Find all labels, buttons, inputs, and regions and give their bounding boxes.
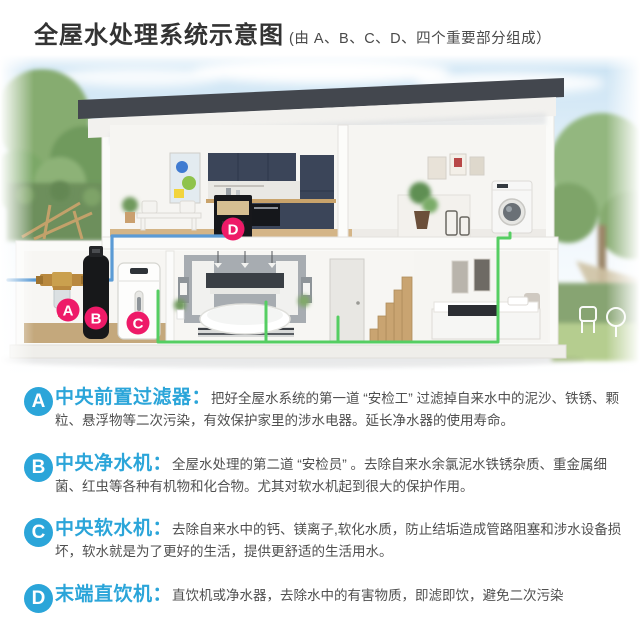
floor-slab xyxy=(102,237,558,249)
marker-c-letter: C xyxy=(133,316,144,333)
section-b-title: 中央净水机： xyxy=(55,453,172,474)
door-knob xyxy=(356,301,360,305)
section-c-text: 中央软水机：去除自来水中的钙、镁离子,软化水质，防止结垢造成管路阻塞和涉水设备损… xyxy=(24,518,624,563)
badge-a: A xyxy=(24,387,53,416)
section-drinking-machine: D 末端直饮机：直饮机或净水器，去除水中的有害物质，即滤即饮，避免二次污染 xyxy=(24,584,624,607)
house-illustration: A B C D xyxy=(0,55,640,377)
badge-c: C xyxy=(24,518,53,547)
section-water-purifier: B 中央净水机：全屋水处理的第二道 “安检员” 。去除自来水余氯泥水铁锈杂质、重… xyxy=(24,453,624,498)
marker-b-letter: B xyxy=(91,311,102,328)
badge-d: D xyxy=(24,584,53,613)
page-title: 全屋水处理系统示意图 xyxy=(34,22,284,49)
marker-d-letter: D xyxy=(228,222,239,239)
section-d-title: 末端直饮机： xyxy=(55,584,172,605)
photo-fade-top xyxy=(0,55,640,71)
marker-d: D xyxy=(222,218,245,241)
hall-pictures xyxy=(428,154,484,179)
legend-sections: A 中央前置过滤器：把好全屋水系统的第一道 “安检工” 过滤掉自来水中的泥沙、铁… xyxy=(0,381,640,620)
marker-a-letter: A xyxy=(63,303,74,320)
section-b-text: 中央净水机：全屋水处理的第二道 “安检员” 。去除自来水余氯泥水铁锈杂质、重金属… xyxy=(24,453,624,498)
house-base-slab xyxy=(10,345,566,358)
bedroom xyxy=(414,251,548,343)
section-d-text: 末端直饮机：直饮机或净水器，去除水中的有害物质，即滤即饮，避免二次污染 xyxy=(24,584,624,607)
house-illustration-svg: A B C D xyxy=(0,55,640,377)
page-subtitle: (由 A、B、C、D、四个重要部分组成） xyxy=(289,31,551,47)
section-water-softener: C 中央软水机：去除自来水中的钙、镁离子,软化水质，防止结垢造成管路阻塞和涉水设… xyxy=(24,518,624,563)
marker-c: C xyxy=(127,312,150,335)
section-a-title: 中央前置过滤器： xyxy=(55,387,211,408)
marker-b: B xyxy=(85,307,108,330)
page-header: 全屋水处理系统示意图(由 A、B、C、D、四个重要部分组成） xyxy=(34,15,634,50)
utility-divider xyxy=(166,251,174,343)
washing-machine xyxy=(492,181,532,233)
photo-fade-left xyxy=(0,55,34,377)
section-a-text: 中央前置过滤器：把好全屋水系统的第一道 “安检工” 过滤掉自来水中的泥沙、铁锈、… xyxy=(24,387,624,432)
marker-a: A xyxy=(57,299,80,322)
section-c-title: 中央软水机： xyxy=(55,518,172,539)
interior-door xyxy=(330,259,364,343)
photo-fade-right xyxy=(606,55,640,377)
section-pre-filter: A 中央前置过滤器：把好全屋水系统的第一道 “安检工” 过滤掉自来水中的泥沙、铁… xyxy=(24,387,624,432)
kitchen-wall-art xyxy=(170,153,200,203)
upper-divider-wall xyxy=(338,125,348,237)
section-d-desc: 直饮机或净水器，去除水中的有害物质，即滤即饮，避免二次污染 xyxy=(172,588,564,603)
badge-b: B xyxy=(24,453,53,482)
